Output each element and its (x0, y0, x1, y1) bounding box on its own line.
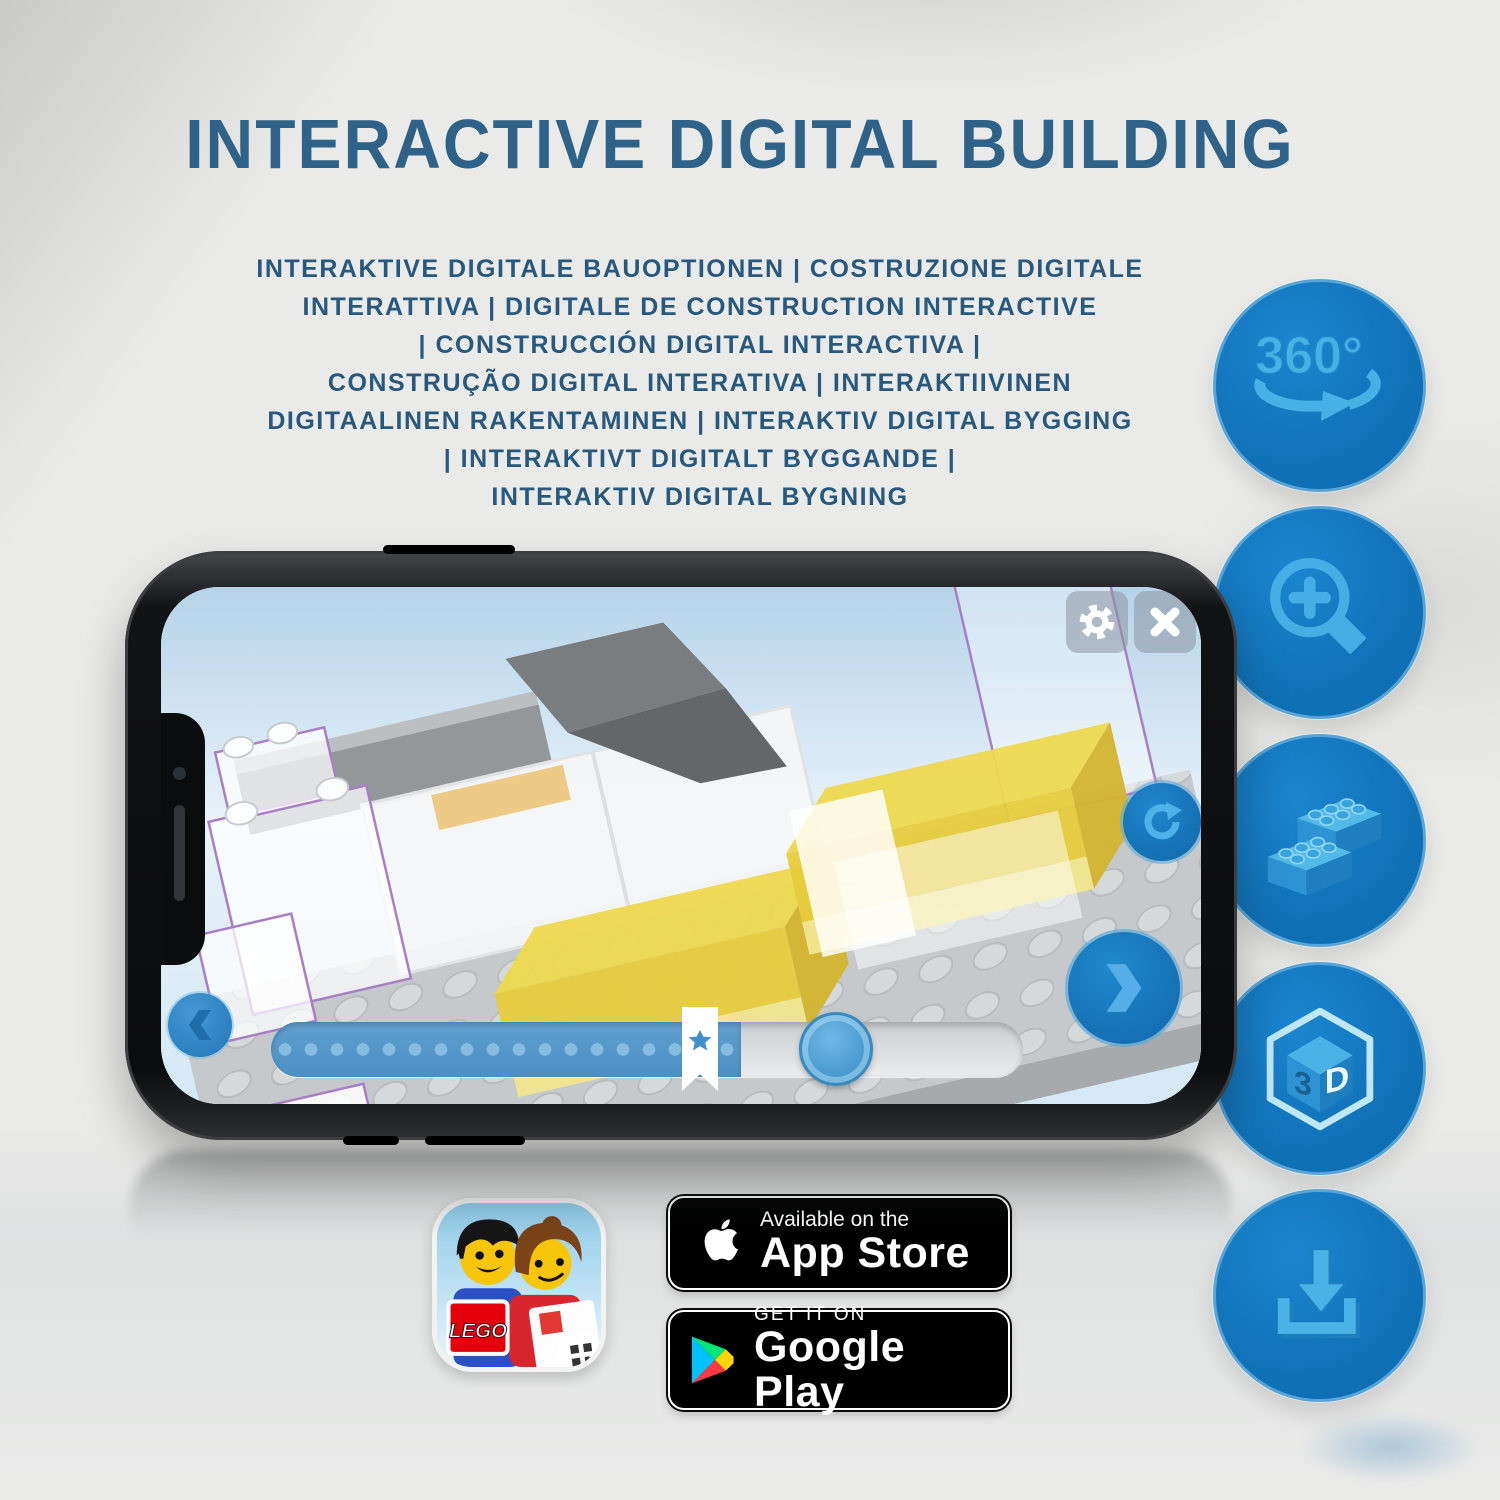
feature-3d-view: 3 D (1213, 962, 1426, 1175)
google-play-icon (690, 1332, 736, 1388)
previous-step-button[interactable] (168, 993, 232, 1057)
gear-icon (1076, 601, 1118, 643)
page-title: INTERACTIVE DIGITAL BUILDING (0, 104, 1480, 184)
phone-notch (161, 713, 205, 965)
star-icon (688, 1029, 712, 1053)
lego-logo: LEGO (449, 1319, 507, 1342)
phone-frame (125, 551, 1237, 1140)
page: INTERACTIVE DIGITAL BUILDING INTERAKTIVE… (0, 0, 1500, 1500)
close-icon (1145, 602, 1185, 642)
feature-360-rotation: 360° (1213, 279, 1426, 492)
cube-3d-icon: 3 D (1252, 1001, 1388, 1137)
lego-brick-icon (1252, 773, 1388, 909)
feature-bricks (1213, 734, 1426, 947)
cube-face-d-label: D (1324, 1058, 1349, 1102)
subtitle-line: INTERATTIVA | DIGITALE DE CONSTRUCTION I… (100, 288, 1300, 326)
progress-slider-handle[interactable] (799, 1012, 873, 1086)
chevron-right-icon (1100, 961, 1148, 1015)
rotate-360-icon: 360° (1245, 321, 1395, 451)
phone-screen (161, 587, 1201, 1104)
download-icon (1256, 1232, 1384, 1360)
settings-button[interactable] (1066, 591, 1128, 653)
zoom-in-icon (1256, 549, 1384, 677)
multilingual-subtitle: INTERAKTIVE DIGITALE BAUOPTIONEN | COSTR… (100, 250, 1300, 516)
chevron-left-icon (185, 1008, 215, 1042)
phone-power-button (425, 1136, 525, 1145)
google-play-name: Google Play (754, 1325, 988, 1415)
feature-circle-reflection (1300, 1412, 1480, 1482)
google-play-badge[interactable]: GET IT ON Google Play (668, 1310, 1010, 1410)
front-camera-dot (173, 767, 186, 780)
subtitle-line: INTERAKTIVE DIGITALE BAUOPTIONEN | COSTR… (100, 250, 1300, 288)
subtitle-line: CONSTRUÇÃO DIGITAL INTERATIVA | INTERAKT… (100, 364, 1300, 402)
cube-face-3-label: 3 (1294, 1063, 1312, 1103)
phone-top-button (383, 545, 515, 554)
build-progress-bar[interactable] (271, 1022, 1023, 1077)
google-play-tagline: GET IT ON (754, 1305, 988, 1325)
phone-volume-button (343, 1136, 399, 1145)
rotate-360-label: 360° (1255, 327, 1363, 385)
subtitle-line: | INTERAKTIVT DIGITALT BYGGANDE | (100, 440, 1300, 478)
rotate-reset-icon (1138, 798, 1186, 846)
speaker-slit (174, 805, 185, 901)
progress-fill (271, 1022, 741, 1077)
phone-reflection (130, 1150, 1232, 1265)
feature-download (1213, 1189, 1426, 1402)
subtitle-line: | CONSTRUCCIÓN DIGITAL INTERACTIVA | (100, 326, 1300, 364)
reset-rotation-button[interactable] (1123, 783, 1201, 861)
subtitle-line: INTERAKTIV DIGITAL BYGNING (100, 478, 1300, 516)
feature-zoom (1213, 506, 1426, 719)
subtitle-line: DIGITAALINEN RAKENTAMINEN | INTERAKTIV D… (100, 402, 1300, 440)
close-button[interactable] (1134, 591, 1196, 653)
next-step-button[interactable] (1068, 932, 1180, 1044)
